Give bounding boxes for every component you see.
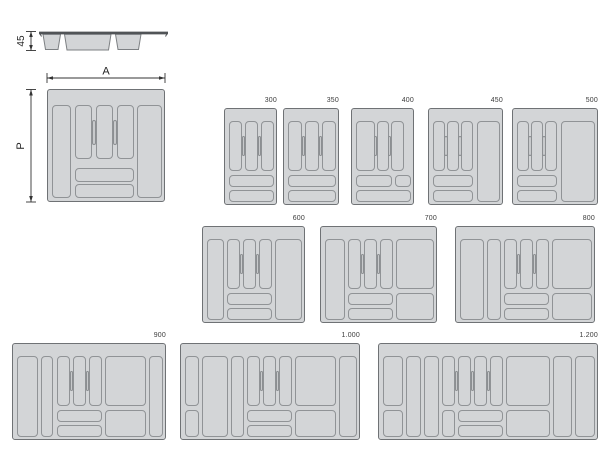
divider-grip: [374, 136, 378, 156]
tray-1000-compartment: [185, 410, 199, 437]
tray-1200-compartment: [458, 410, 503, 422]
tray-1200-compartment: [506, 356, 550, 406]
tray-1200-compartment: [458, 356, 471, 406]
tray-600-compartment: [207, 239, 224, 320]
tray-600-compartment: [227, 293, 272, 305]
divider-grip: [517, 254, 521, 274]
tray-350-size-label: 350: [283, 97, 339, 105]
tray-detail-compartment: [75, 184, 134, 198]
tray-350-compartment: [288, 190, 336, 202]
divider-grip: [256, 254, 260, 274]
tray-1000-compartment: [231, 356, 244, 437]
tray-1200-compartment: [575, 356, 595, 437]
tray-450-compartment: [433, 190, 473, 202]
tray-400-size-label: 400: [351, 97, 414, 105]
tray-1000-compartment: [247, 410, 292, 422]
tray-400-compartment: [391, 121, 404, 171]
tray-1000-compartment: [202, 356, 228, 437]
tray-1000-compartment: [279, 356, 292, 406]
divider-grip: [455, 371, 459, 391]
tray-1000-compartment: [247, 425, 292, 437]
tray-1000-compartment: [339, 356, 357, 437]
tray-1200-compartment: [490, 356, 503, 406]
tray-900: [12, 343, 166, 440]
tray-1200-size-label: 1.200: [378, 332, 598, 340]
tray-700-compartment: [364, 239, 377, 289]
tray-1200-compartment: [424, 356, 439, 437]
tray-900-compartment: [57, 356, 70, 406]
divider-grip: [487, 371, 491, 391]
tray-300-compartment: [261, 121, 274, 171]
divider-grip: [319, 136, 323, 156]
tray-800-compartment: [520, 239, 533, 289]
divider-grip: [92, 120, 96, 145]
tray-800-size-label: 800: [455, 215, 595, 223]
tray-300-compartment: [229, 175, 274, 187]
divider-grip: [458, 136, 462, 156]
tray-400-compartment: [356, 121, 375, 171]
tray-1000-compartment: [247, 356, 260, 406]
tray-300: [224, 108, 277, 205]
tray-1000-compartment: [263, 356, 276, 406]
tray-800-compartment: [504, 239, 517, 289]
tray-500-compartment: [545, 121, 557, 171]
tray-1200-compartment: [442, 356, 455, 406]
divider-grip: [533, 254, 537, 274]
divider-grip: [240, 254, 244, 274]
divider-grip: [258, 136, 262, 156]
tray-900-compartment: [105, 410, 146, 437]
tray-1000-compartment: [185, 356, 199, 406]
tray-700-compartment: [348, 308, 393, 320]
tray-400-compartment: [395, 175, 411, 187]
tray-500-compartment: [517, 121, 529, 171]
tray-900-compartment: [41, 356, 53, 437]
divider-grip: [471, 371, 475, 391]
tray-500-compartment: [531, 121, 543, 171]
tray-700-compartment: [380, 239, 393, 289]
tray-900-compartment: [89, 356, 102, 406]
divider-grip: [542, 136, 546, 156]
tray-600-compartment: [243, 239, 256, 289]
tray-700-compartment: [348, 239, 361, 289]
tray-400: [351, 108, 414, 205]
divider-grip: [276, 371, 280, 391]
tray-500-compartment: [561, 121, 595, 202]
tray-detail-compartment: [96, 105, 113, 159]
tray-600-compartment: [227, 308, 272, 320]
tray-900-compartment: [105, 356, 146, 406]
tray-700-compartment: [325, 239, 345, 320]
divider-grip: [113, 120, 117, 145]
tray-800-compartment: [552, 293, 592, 320]
tray-600-compartment: [227, 239, 240, 289]
tray-450-compartment: [477, 121, 500, 202]
tray-detail-compartment: [75, 168, 134, 182]
tray-900-compartment: [73, 356, 86, 406]
tray-450-compartment: [447, 121, 459, 171]
tray-detail-compartment: [75, 105, 92, 159]
tray-1000-compartment: [295, 356, 336, 406]
divider-grip: [260, 371, 264, 391]
tray-1200-compartment: [474, 356, 487, 406]
tray-600-compartment: [259, 239, 272, 289]
tray-350-compartment: [322, 121, 336, 171]
divider-grip: [302, 136, 306, 156]
tray-500-compartment: [517, 190, 557, 202]
tray-300-compartment: [229, 121, 242, 171]
tray-700-compartment: [348, 293, 393, 305]
tray-600-size-label: 600: [202, 215, 305, 223]
tray-350-compartment: [288, 121, 302, 171]
tray-800-compartment: [504, 308, 549, 320]
tray-800: [455, 226, 595, 323]
tray-450-compartment: [433, 175, 473, 187]
tray-1200: [378, 343, 598, 440]
divider-grip: [242, 136, 246, 156]
tray-1200-compartment: [442, 410, 455, 437]
divider-grip: [444, 136, 448, 156]
tray-size-grid: 3003504004505006007008009001.0001.200: [0, 0, 600, 450]
tray-500: [512, 108, 598, 205]
tray-300-compartment: [229, 190, 274, 202]
tray-800-compartment: [460, 239, 484, 320]
tray-900-compartment: [17, 356, 38, 437]
tray-1200-compartment: [406, 356, 421, 437]
tray-detail-compartment: [137, 105, 162, 198]
tray-1000-size-label: 1.000: [180, 332, 360, 340]
divider-grip: [70, 371, 74, 391]
tray-700-size-label: 700: [320, 215, 437, 223]
tray-600: [202, 226, 305, 323]
tray-350-compartment: [305, 121, 319, 171]
divider-grip: [361, 254, 365, 274]
tray-1200-compartment: [506, 410, 550, 437]
tray-450-compartment: [461, 121, 473, 171]
tray-1000-compartment: [295, 410, 336, 437]
tray-900-size-label: 900: [12, 332, 166, 340]
divider-grip: [388, 136, 392, 156]
tray-300-compartment: [245, 121, 258, 171]
tray-900-compartment: [149, 356, 163, 437]
divider-grip: [377, 254, 381, 274]
tray-400-compartment: [356, 190, 411, 202]
tray-450-size-label: 450: [428, 97, 503, 105]
tray-900-compartment: [57, 410, 102, 422]
tray-700-compartment: [396, 293, 434, 320]
tray-detail: [47, 89, 165, 202]
tray-700: [320, 226, 437, 323]
cutlery-tray-size-diagram: 45 A P 3003504004505006007008009001.0001…: [0, 0, 600, 450]
tray-detail-compartment: [117, 105, 134, 159]
tray-900-compartment: [57, 425, 102, 437]
tray-600-compartment: [275, 239, 302, 320]
tray-1200-compartment: [383, 410, 403, 437]
divider-grip: [86, 371, 90, 391]
tray-800-compartment: [504, 293, 549, 305]
tray-800-compartment: [487, 239, 501, 320]
tray-1200-compartment: [458, 425, 503, 437]
tray-800-compartment: [552, 239, 592, 289]
tray-400-compartment: [356, 175, 392, 187]
tray-700-compartment: [396, 239, 434, 289]
tray-1200-compartment: [553, 356, 572, 437]
tray-500-size-label: 500: [512, 97, 598, 105]
tray-450: [428, 108, 503, 205]
tray-450-compartment: [433, 121, 445, 171]
tray-500-compartment: [517, 175, 557, 187]
tray-300-size-label: 300: [224, 97, 277, 105]
divider-grip: [528, 136, 532, 156]
tray-350-compartment: [288, 175, 336, 187]
tray-1200-compartment: [383, 356, 403, 406]
tray-1000: [180, 343, 360, 440]
tray-350: [283, 108, 339, 205]
tray-800-compartment: [536, 239, 549, 289]
tray-detail-compartment: [52, 105, 71, 198]
